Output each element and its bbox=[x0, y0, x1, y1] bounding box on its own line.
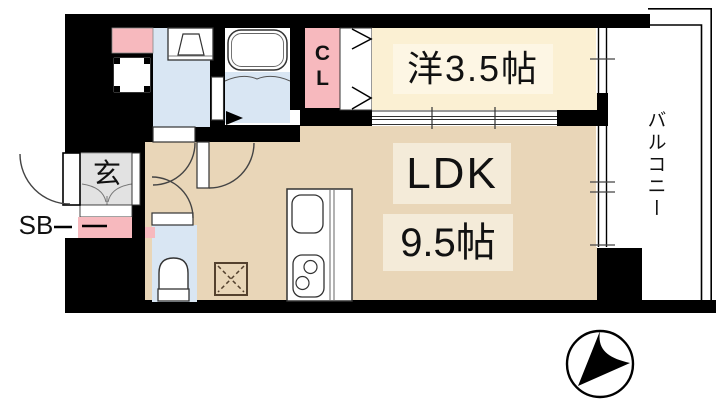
ldk-door-leaf bbox=[197, 142, 209, 188]
sliding-partition-track bbox=[372, 110, 557, 126]
sliding-partition bbox=[372, 107, 557, 129]
washroom-door bbox=[153, 127, 195, 142]
wall-below-closet bbox=[300, 108, 372, 126]
balcony-label: バルコニー bbox=[641, 90, 669, 240]
washing-machine-pan bbox=[113, 57, 151, 93]
toilet-tank bbox=[158, 289, 189, 301]
toilet-room bbox=[145, 213, 197, 302]
entrance-side-strip bbox=[132, 153, 140, 205]
western-room-label: 洋3.5帖 bbox=[393, 44, 553, 94]
toilet-door-hinge bbox=[145, 227, 155, 238]
entrance-label: 玄 bbox=[88, 158, 126, 190]
burner-icon bbox=[304, 261, 317, 274]
ldk-size-label: 9.5帖 bbox=[383, 214, 513, 271]
floor-plan: 洋3.5帖 LDK 9.5帖 バルコニー CL 玄 SB bbox=[0, 0, 726, 405]
bathtub bbox=[228, 30, 287, 70]
ldk-label: LDK bbox=[393, 143, 511, 204]
toilet-door bbox=[152, 213, 193, 225]
wall-bottom-left-mass bbox=[65, 238, 150, 308]
toilet-icon bbox=[159, 258, 188, 291]
bathroom-door bbox=[212, 77, 224, 120]
closet-label: CL bbox=[305, 36, 340, 98]
floor-plan-drawing bbox=[0, 0, 726, 405]
front-door-leaf bbox=[63, 153, 80, 205]
burner-icon bbox=[296, 277, 309, 290]
north-compass-icon bbox=[567, 331, 633, 397]
shoe-box bbox=[78, 217, 132, 238]
vanity-sink bbox=[168, 28, 213, 60]
washroom-counter bbox=[112, 28, 153, 53]
wall-entrance-right bbox=[132, 205, 142, 240]
kitchen-sink bbox=[292, 195, 323, 233]
wall-above-entrance bbox=[78, 140, 150, 153]
wall-bath-closet bbox=[290, 25, 305, 110]
shoe-box-label: SB bbox=[14, 210, 58, 240]
entrance-step bbox=[80, 205, 132, 217]
